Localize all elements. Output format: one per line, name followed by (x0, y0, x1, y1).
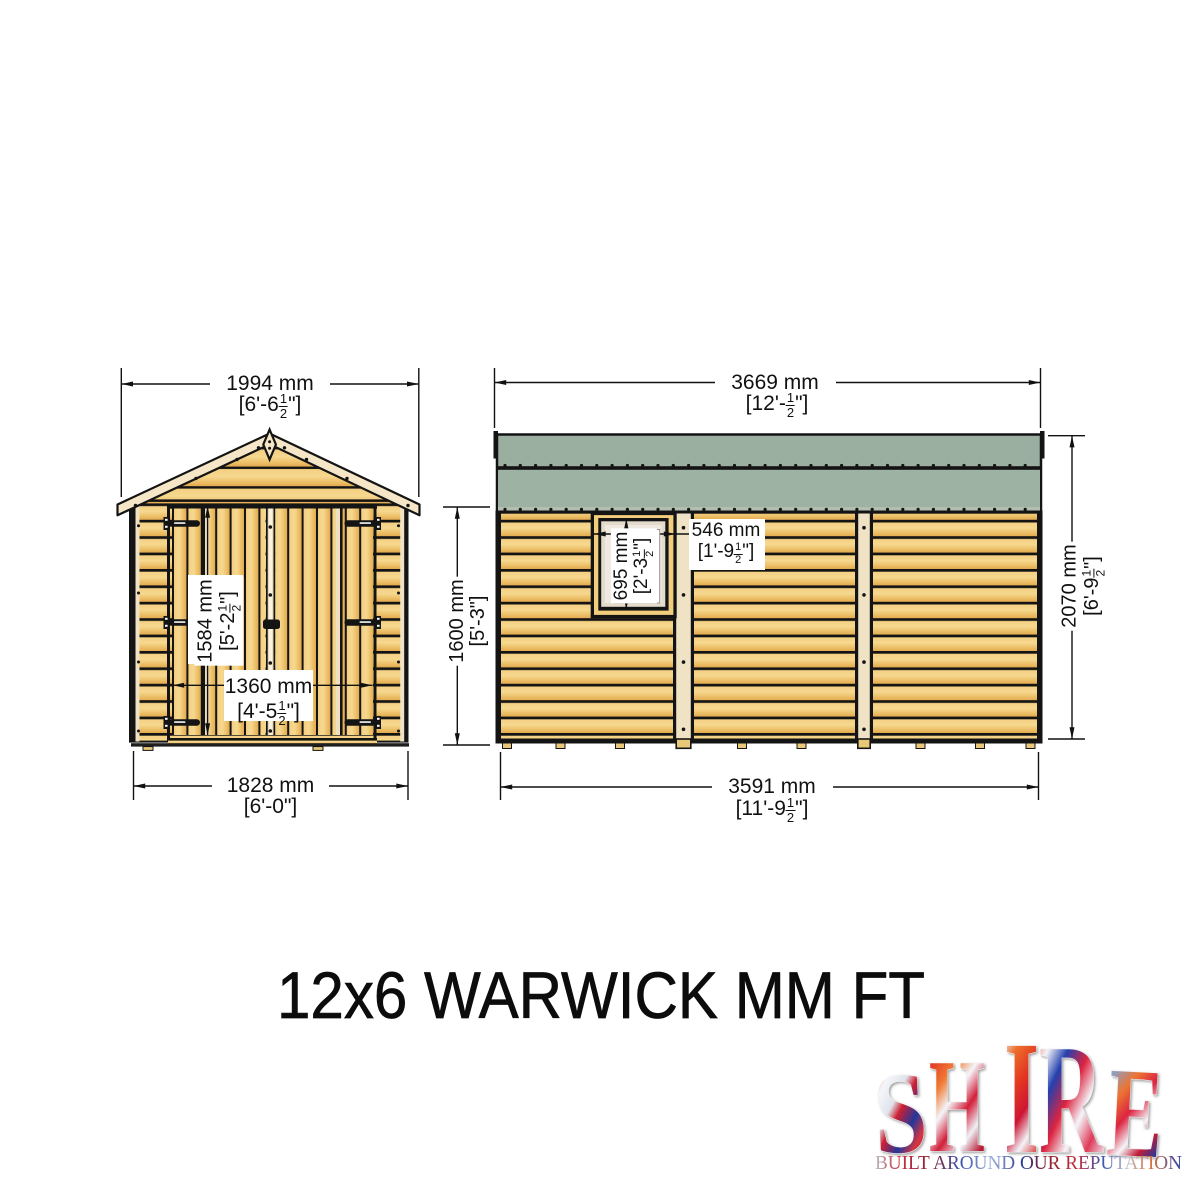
svg-text:BUILT AROUND OUR REPUTATION: BUILT AROUND OUR REPUTATION (875, 1153, 1182, 1174)
